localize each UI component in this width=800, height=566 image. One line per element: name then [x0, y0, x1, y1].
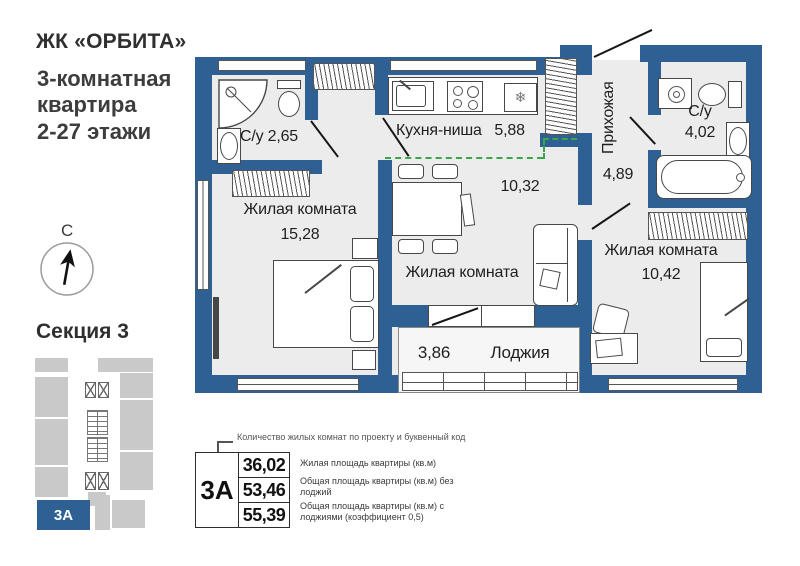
- mini-unit: [120, 373, 153, 398]
- unit-code: 3А: [196, 453, 239, 527]
- mini-unit: [88, 492, 106, 506]
- wall: [640, 45, 762, 62]
- living-area-label: Жилая площадь квартиры (кв.м): [300, 458, 460, 469]
- pillow: [350, 266, 374, 302]
- wall-shaft: [218, 60, 306, 71]
- room-area: 5,88: [494, 122, 524, 139]
- mini-unit: [120, 400, 153, 450]
- wall: [746, 45, 762, 393]
- dining-table-icon: [392, 182, 462, 236]
- total-area-value: 53,46: [239, 478, 289, 503]
- loggia-label: Лоджия: [478, 343, 562, 363]
- chair-icon: [432, 239, 458, 254]
- wardrobe-icon: [313, 63, 375, 90]
- callout-line: [217, 441, 219, 452]
- mini-unit: [120, 452, 153, 490]
- kitchen-zone-dashed-line: [543, 138, 577, 140]
- sink-basin: [729, 127, 747, 155]
- wall: [578, 147, 592, 205]
- room-label-bath-big: С/у: [676, 103, 724, 121]
- nightstand-icon: [352, 350, 376, 370]
- sink-basin: [220, 132, 238, 160]
- window: [608, 378, 738, 391]
- wall-shaft: [390, 60, 537, 71]
- wardrobe-icon: [232, 170, 310, 197]
- legend-callout: Количество жилых комнат по проекту и бук…: [237, 432, 465, 442]
- sofa-cushion-line: [536, 263, 568, 264]
- mini-unit: [35, 358, 68, 372]
- room-name: Кухня-ниша: [396, 122, 482, 139]
- snowflake-glyph: ❄: [515, 89, 527, 106]
- loggia-area-value: 3,86: [410, 343, 458, 363]
- total-area-with-loggia-label: Общая площадь квартиры (кв.м) с лоджиями…: [300, 501, 460, 524]
- elevator-icon: [98, 382, 109, 398]
- area-values: 36,02 53,46 55,39: [239, 453, 289, 527]
- living-area-value: 36,02: [239, 453, 289, 478]
- room-area-hallway: 4,89: [596, 166, 640, 184]
- room-area: 2,65: [268, 128, 298, 145]
- stairs-icon: [87, 437, 108, 462]
- toilet-bowl: [278, 91, 300, 117]
- kitchen-zone-dashed-line: [385, 157, 543, 159]
- pillow: [706, 338, 742, 357]
- window: [237, 378, 359, 391]
- sofa-backrest: [567, 228, 568, 302]
- pillow: [350, 306, 374, 342]
- compass-icon: [38, 240, 96, 298]
- compass-north-label: С: [61, 221, 73, 241]
- total-area-with-loggia-value: 55,39: [239, 503, 289, 527]
- elevator-icon: [85, 382, 96, 398]
- toilet-icon: [277, 80, 301, 89]
- room-area-bath-big: 4,02: [672, 124, 728, 142]
- room-label-left: Жилая комната: [236, 201, 364, 219]
- callout-line: [217, 441, 233, 443]
- floorplan-page: ЖК «ОРБИТА» 3-комнатная квартира 2-27 эт…: [0, 0, 800, 566]
- room-label-kitchen: Кухня-ниша 5,88: [396, 122, 525, 140]
- wardrobe-icon: [648, 212, 748, 240]
- room-label-hallway: Прихожая: [600, 58, 618, 154]
- room-label-bath-small: С/у 2,65: [240, 128, 318, 146]
- elevator-icon: [98, 472, 109, 490]
- room-label-middle: Жилая комната: [396, 264, 528, 282]
- elevator-icon: [85, 472, 96, 490]
- mini-unit: [35, 419, 68, 465]
- room-label-right: Жилая комната: [602, 242, 720, 260]
- wall: [375, 57, 388, 115]
- balcony-door-divider: [481, 306, 482, 326]
- stairs-icon: [87, 410, 108, 435]
- wall: [540, 133, 592, 147]
- chair-icon: [398, 164, 424, 179]
- shower-icon: [217, 78, 271, 132]
- mini-unit: [112, 500, 145, 528]
- room-name: С/у: [240, 128, 263, 145]
- area-table: 3А 36,02 53,46 55,39: [195, 452, 290, 528]
- room-area-left: 15,28: [236, 226, 364, 244]
- bathtub-drain: [736, 173, 745, 182]
- chair-icon: [398, 239, 424, 254]
- wardrobe-icon: [545, 58, 577, 135]
- subtitle-line: 3-комнатная: [37, 66, 171, 92]
- complex-name: ЖК «ОРБИТА»: [36, 30, 186, 54]
- wall: [560, 45, 592, 59]
- toilet-tank: [728, 81, 742, 108]
- section-title: Секция 3: [36, 320, 129, 344]
- sofa-pillow: [539, 268, 560, 289]
- sofa-icon: [533, 224, 578, 306]
- window: [197, 180, 209, 290]
- kitchen-zone-dashed-line: [543, 139, 545, 159]
- wall: [378, 160, 392, 376]
- room-area-middle: 10,32: [494, 178, 546, 196]
- fridge-icon: ❄: [504, 83, 537, 112]
- wall: [378, 305, 428, 327]
- apartment-subtitle: 3-комнатная квартира 2-27 этажи: [37, 66, 171, 145]
- mini-unit: [35, 467, 68, 497]
- loggia-glazing: [402, 372, 578, 391]
- bathtub-inner: [661, 160, 743, 194]
- tv-icon: [213, 297, 219, 359]
- total-area-label: Общая площадь квартиры (кв.м) без лоджий: [300, 476, 460, 499]
- mini-unit: [98, 358, 153, 372]
- subtitle-line: квартира: [37, 92, 171, 118]
- mini-unit: [35, 377, 68, 417]
- subtitle-line: 2-27 этажи: [37, 119, 171, 145]
- wall: [535, 305, 578, 327]
- mini-unit-3a-highlight[interactable]: 3А: [37, 500, 90, 530]
- chair-icon: [432, 164, 458, 179]
- room-area-right: 10,42: [602, 266, 720, 284]
- laptop-icon: [595, 338, 623, 359]
- stove-icon: [447, 81, 483, 112]
